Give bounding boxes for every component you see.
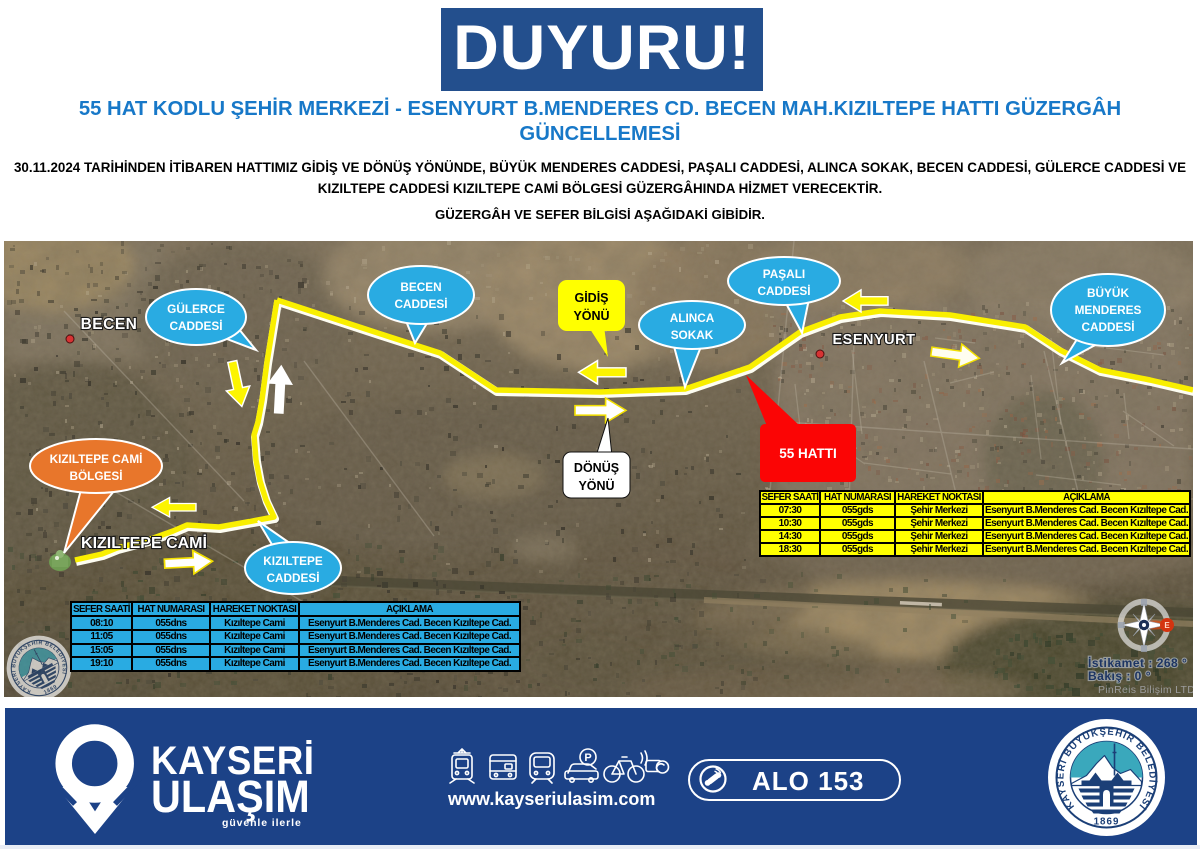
svg-text:CADDESİ: CADDESİ: [394, 297, 447, 311]
svg-text:BÖLGESİ: BÖLGESİ: [69, 469, 122, 483]
svg-text:CADDESİ: CADDESİ: [1081, 320, 1134, 334]
svg-text:BECEN: BECEN: [400, 280, 441, 294]
svg-text:YÖNÜ: YÖNÜ: [573, 308, 609, 323]
svg-text:SOKAK: SOKAK: [671, 328, 714, 342]
svg-text:KIZILTEPE: KIZILTEPE: [263, 554, 323, 568]
svg-text:ESENYURT: ESENYURT: [833, 332, 916, 348]
svg-text:E: E: [1164, 621, 1170, 630]
svg-text:İstikamet : 268 °: İstikamet : 268 °: [1088, 655, 1187, 670]
svg-text:Bakış : 0 °: Bakış : 0 °: [1088, 669, 1151, 683]
svg-text:CADDESİ: CADDESİ: [757, 284, 810, 298]
svg-text:55 HATTI: 55 HATTI: [779, 446, 837, 461]
svg-text:GÜLERCE: GÜLERCE: [167, 302, 225, 316]
svg-text:MENDERES: MENDERES: [1075, 303, 1142, 317]
svg-text:BÜYÜK: BÜYÜK: [1087, 286, 1129, 300]
svg-text:PinReis Bilişim LTD: PinReis Bilişim LTD: [1098, 684, 1193, 696]
svg-text:CADDESİ: CADDESİ: [266, 571, 319, 585]
svg-text:KIZILTEPE CAMİ: KIZILTEPE CAMİ: [50, 452, 143, 466]
svg-text:KIZILTEPE CAMİ: KIZILTEPE CAMİ: [81, 534, 207, 552]
svg-text:CADDESİ: CADDESİ: [169, 319, 222, 333]
svg-text:GİDİŞ: GİDİŞ: [574, 290, 608, 305]
svg-text:1869: 1869: [1094, 817, 1120, 828]
svg-text:YÖNÜ: YÖNÜ: [578, 478, 614, 493]
svg-text:P: P: [584, 752, 591, 764]
svg-text:DÖNÜŞ: DÖNÜŞ: [574, 460, 619, 475]
svg-text:BECEN: BECEN: [81, 316, 138, 333]
svg-text:PAŞALI: PAŞALI: [763, 267, 805, 281]
svg-text:ALINCA: ALINCA: [670, 311, 715, 325]
